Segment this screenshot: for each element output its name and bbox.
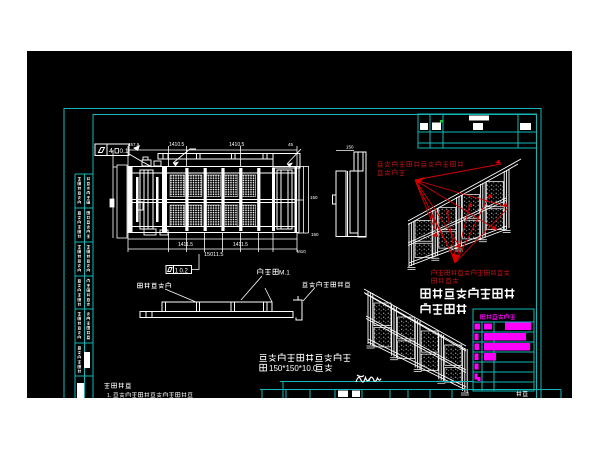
svg-text:M10: M10 xyxy=(297,249,306,254)
svg-text:0.1: 0.1 xyxy=(120,148,129,155)
svg-text:15011.5: 15011.5 xyxy=(204,252,223,258)
svg-text:150*150*10.0: 150*150*10.0 xyxy=(269,364,318,373)
svg-text:1: 1 xyxy=(175,268,179,275)
svg-text:4: 4 xyxy=(109,148,113,155)
svg-text:150: 150 xyxy=(311,232,319,237)
svg-text:45: 45 xyxy=(288,142,294,147)
svg-text:150: 150 xyxy=(310,195,318,200)
svg-text:1410.5: 1410.5 xyxy=(229,142,245,148)
svg-text:1.: 1. xyxy=(107,393,111,398)
svg-text:1410.5: 1410.5 xyxy=(169,142,185,148)
svg-text:1411.5: 1411.5 xyxy=(178,242,193,248)
svg-text:M.1: M.1 xyxy=(279,270,290,277)
svg-text:457.5: 457.5 xyxy=(128,142,140,147)
svg-text:0.2: 0.2 xyxy=(180,269,189,275)
svg-text:150: 150 xyxy=(346,145,354,150)
svg-text:1411.5: 1411.5 xyxy=(233,242,248,248)
